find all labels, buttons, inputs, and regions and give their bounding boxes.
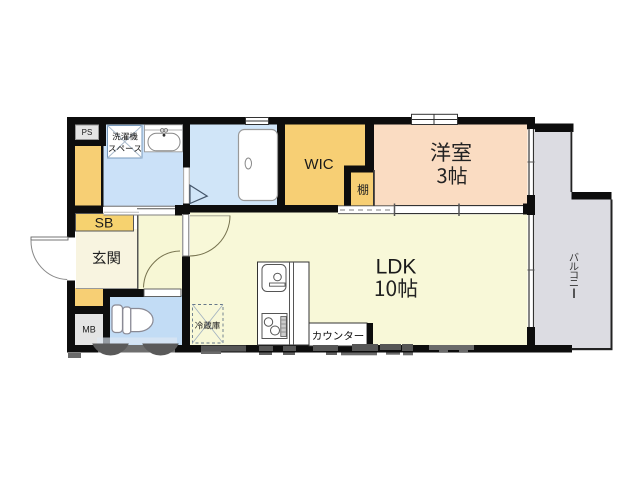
svg-text:SB: SB [95,215,114,231]
svg-text:PS: PS [82,128,93,137]
svg-text:MB: MB [82,325,96,335]
svg-text:WIC: WIC [304,156,333,173]
svg-text:LDK: LDK [376,256,417,279]
